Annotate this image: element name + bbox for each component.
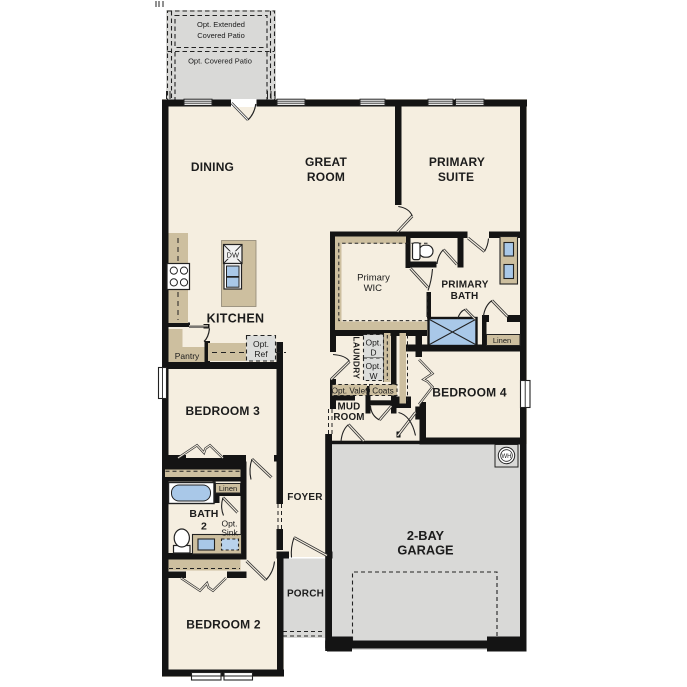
svg-text:Opt. Extended: Opt. Extended [197,20,245,29]
svg-text:2: 2 [201,521,207,533]
svg-text:Ref: Ref [254,349,268,359]
svg-text:BEDROOM 3: BEDROOM 3 [186,404,261,418]
svg-text:Opt.: Opt. [365,361,381,371]
svg-text:WH: WH [502,454,512,460]
svg-text:MUD: MUD [338,402,361,413]
svg-text:ROOM: ROOM [307,170,345,184]
svg-text:Opt.: Opt. [253,339,269,349]
svg-text:BATH: BATH [451,291,479,302]
svg-text:WIC: WIC [364,283,383,294]
svg-text:Covered Patio: Covered Patio [197,31,245,40]
svg-text:DW: DW [227,251,240,260]
svg-text:Sink: Sink [221,528,238,538]
svg-text:BATH: BATH [189,508,218,520]
svg-text:Linen: Linen [219,484,237,493]
svg-text:D: D [370,348,376,358]
svg-text:GARAGE: GARAGE [397,543,454,558]
svg-text:DINING: DINING [191,160,234,174]
svg-text:GREAT: GREAT [305,155,348,169]
svg-text:KITCHEN: KITCHEN [207,312,265,326]
svg-text:BEDROOM 2: BEDROOM 2 [186,618,261,632]
svg-text:PORCH: PORCH [287,589,324,600]
svg-text:Opt. Valet: Opt. Valet [332,387,369,396]
svg-text:FOYER: FOYER [287,492,323,503]
svg-text:Linen: Linen [493,336,511,345]
svg-text:Opt. Covered Patio: Opt. Covered Patio [188,57,252,66]
svg-text:PRIMARY: PRIMARY [429,155,485,169]
svg-text:SUITE: SUITE [438,170,474,184]
svg-text:PRIMARY: PRIMARY [441,280,488,291]
svg-text:Pantry: Pantry [175,351,200,361]
svg-text:W: W [369,371,377,381]
svg-text:ROOM: ROOM [333,412,364,423]
svg-text:2-BAY: 2-BAY [407,528,445,543]
svg-text:Primary: Primary [357,273,390,284]
svg-text:Coats: Coats [372,387,393,396]
svg-text:LAUNDRY: LAUNDRY [352,336,362,379]
svg-text:Opt.: Opt. [365,338,381,348]
svg-text:BEDROOM 4: BEDROOM 4 [432,386,507,400]
